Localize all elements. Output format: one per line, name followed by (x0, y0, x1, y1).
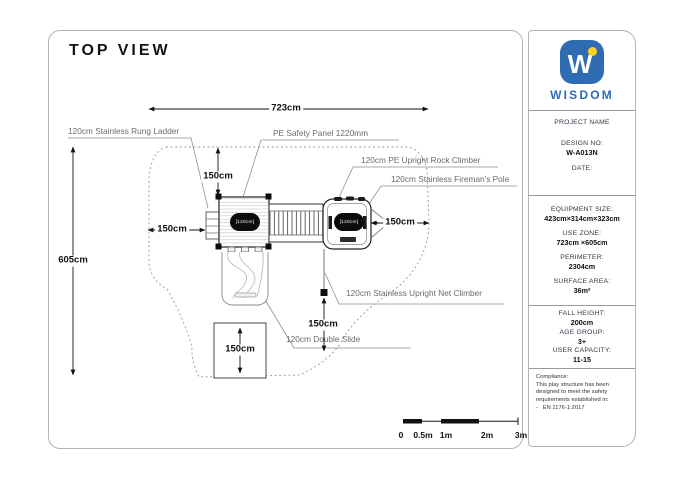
top-view-frame: TOP VIEW 723cm 605cm 150cm 150cm 150cm 1… (48, 30, 523, 449)
left-platform-badge: [120cm] (230, 213, 260, 231)
design-no-label: DESIGN NO: (561, 140, 603, 147)
spec-fall-height: FALL HEIGHT: 200cm (529, 310, 635, 327)
page-title: TOP VIEW (69, 42, 171, 60)
leader-lines (68, 138, 517, 348)
label-safety-panel: PE Safety Panel 1220mm (273, 129, 368, 138)
logo-dot (588, 47, 597, 56)
label-rung-ladder: 120cm Stainless Rung Ladder (68, 127, 179, 136)
scale-label-3m: 3m (515, 430, 527, 440)
spec-perimeter: PERIMETER: 2304cm (529, 254, 635, 271)
scale-label-0: 0 (399, 430, 404, 440)
brand-name: WISDOM (550, 88, 614, 102)
compliance-label: Compliance: (536, 374, 628, 382)
specs-section: EQUIPMENT SIZE: 423cm×314cm×323cm USE ZO… (529, 196, 635, 306)
dim-clearance-right: 150cm (383, 218, 417, 229)
dim-slide-exit: 150cm (223, 345, 257, 356)
dim-use-zone-width: 723cm (269, 104, 303, 115)
label-net-climber: 120cm Stainless Upright Net Climber (346, 289, 482, 298)
scale-label-2m: 2m (481, 430, 493, 440)
safety-section: FALL HEIGHT: 200cm AGE GROUP: 3+ USER CA… (529, 306, 635, 369)
compliance-text: This play structure has been designed to… (536, 382, 628, 405)
wisdom-logo-icon: W (559, 39, 605, 85)
compliance-standard: - EN 1176-1:2017 (536, 405, 628, 413)
compliance-section: Compliance: This play structure has been… (529, 369, 635, 446)
scale-bar (403, 418, 518, 426)
linework (49, 31, 522, 448)
dim-clearance-top: 150cm (201, 172, 235, 183)
right-platform-badge: [120cm] (334, 213, 364, 231)
project-section: PROJECT NAME DESIGN NO: W-A013N DATE: (529, 111, 635, 196)
label-rock-climber: 120cm PE Upright Rock Climber (361, 156, 480, 165)
spec-equipment-size: EQUIPMENT SIZE: 423cm×314cm×323cm (529, 206, 635, 223)
spec-age-group: AGE GROUP: 3+ (529, 329, 635, 346)
spec-surface-area: SURFACE AREA: 36m² (529, 278, 635, 295)
rung-ladder (206, 212, 219, 239)
dim-use-zone-height: 605cm (56, 256, 90, 267)
project-name-label: PROJECT NAME (554, 119, 610, 126)
label-fireman-pole: 120cm Stainless Fireman's Pole (391, 175, 509, 184)
label-double-slide: 120cm Double Slide (286, 335, 360, 344)
design-no-value: W-A013N (566, 148, 597, 157)
scale-label-1m: 1m (440, 430, 452, 440)
spec-use-zone: USE ZONE: 723cm ×605cm (529, 230, 635, 247)
net-climber-post (321, 289, 328, 296)
scale-label-05m: 0.5m (413, 430, 432, 440)
title-block: W WISDOM PROJECT NAME DESIGN NO: W-A013N… (528, 30, 636, 447)
dim-net-clearance: 150cm (306, 320, 340, 331)
brand-section: W WISDOM (529, 31, 635, 111)
dim-clearance-left: 150cm (155, 225, 189, 236)
date-label: DATE: (572, 165, 593, 172)
spec-user-capacity: USER CAPACITY: 11-15 (529, 347, 635, 364)
drawing-sheet: TOP VIEW 723cm 605cm 150cm 150cm 150cm 1… (0, 0, 680, 481)
